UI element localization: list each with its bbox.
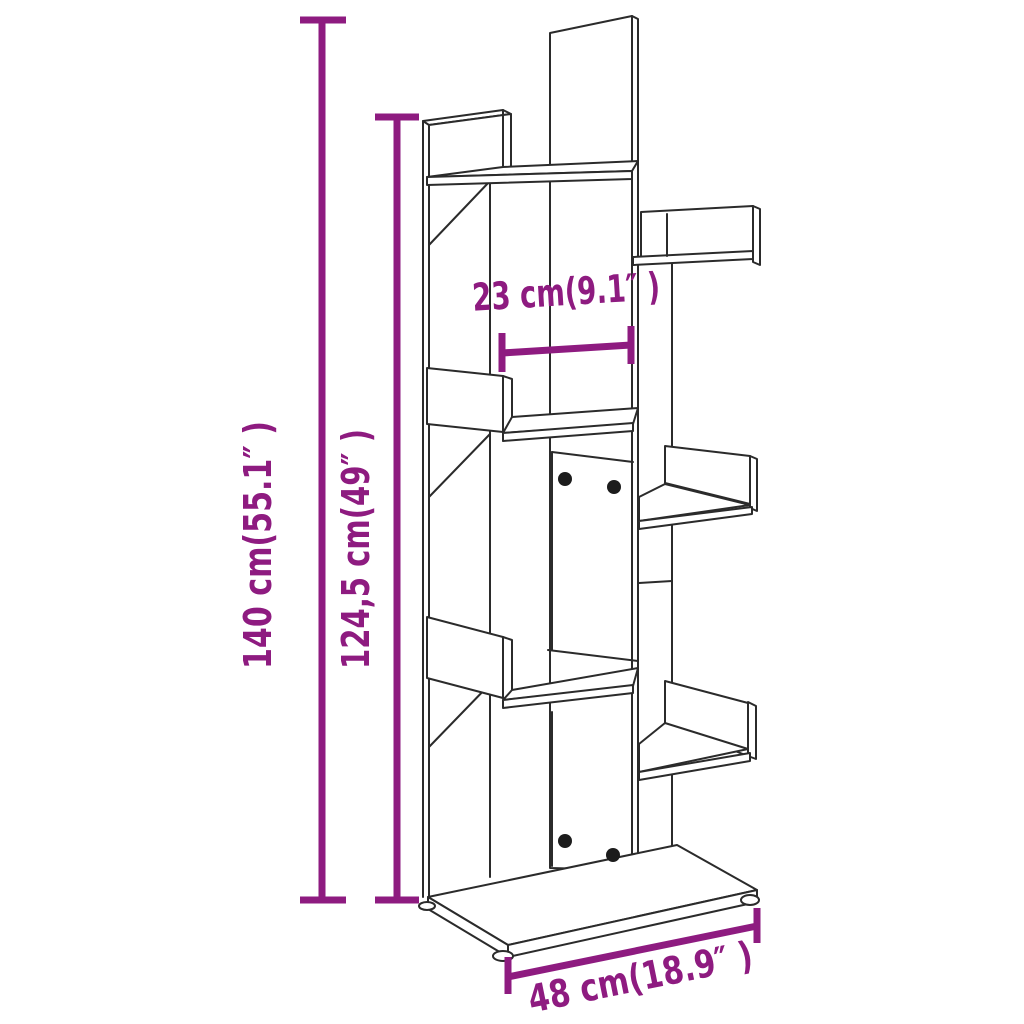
dimension-diagram: 140 cm(55.1″ ) 124,5 cm(49″ ) 23 cm(9.1″… (0, 0, 1024, 1024)
foot-right (741, 895, 759, 905)
right-shelf-bottom (639, 681, 756, 780)
total-height-label: 140 cm(55.1″ ) (236, 421, 280, 669)
shelf-height-label: 124,5 cm(49″ ) (334, 429, 378, 669)
dimension-total-height: 140 cm(55.1″ ) (236, 20, 346, 900)
bookshelf-diagram-svg: 140 cm(55.1″ ) 124,5 cm(49″ ) 23 cm(9.1″… (0, 0, 1024, 1024)
right-shelf-middle (639, 446, 757, 529)
foot-left (419, 902, 435, 910)
right-shelf-top (633, 206, 760, 265)
left-side-panel (423, 110, 511, 897)
spine-panel (550, 16, 638, 872)
bookshelf-drawing (419, 16, 760, 961)
dimension-shelf-height: 124,5 cm(49″ ) (334, 117, 419, 900)
